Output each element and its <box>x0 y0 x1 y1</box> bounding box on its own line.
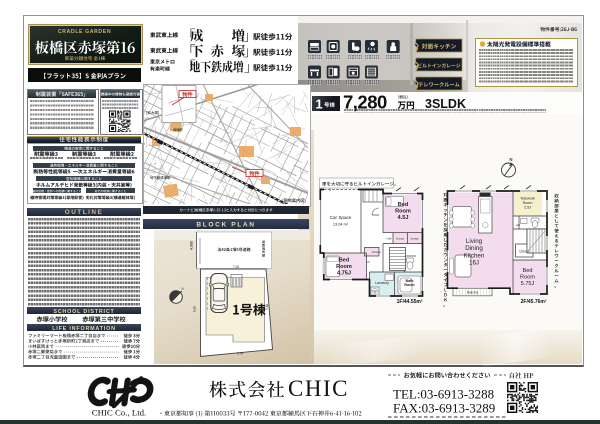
svg-text:LIFE INFORMATION: LIFE INFORMATION <box>52 326 116 332</box>
svg-text:BLOCK PLAN: BLOCK PLAN <box>196 221 255 228</box>
svg-text:Storage: Storage <box>410 238 419 241</box>
svg-text:FAX:03-6913-3289: FAX:03-6913-3289 <box>393 401 495 416</box>
svg-text:SCHOOL DISTRICT: SCHOOL DISTRICT <box>53 309 114 315</box>
svg-text:4.75J: 4.75J <box>337 271 351 277</box>
svg-text:16J: 16J <box>469 260 479 267</box>
svg-text:13.04 m²: 13.04 m² <box>333 222 349 227</box>
svg-text:W: W <box>373 290 376 294</box>
svg-text:CHIC Co., Ltd.: CHIC Co., Ltd. <box>92 408 147 418</box>
svg-text:UP: UP <box>366 260 370 264</box>
svg-text:Lavatory: Lavatory <box>375 281 389 285</box>
svg-text:Room: Room <box>523 201 533 205</box>
svg-text:Hall: Hall <box>516 223 521 227</box>
svg-text:N: N <box>181 287 184 291</box>
svg-text:Room: Room <box>336 264 352 270</box>
svg-text:Car Space: Car Space <box>330 215 352 220</box>
svg-text:Telework: Telework <box>520 197 535 201</box>
svg-text:N: N <box>509 157 512 162</box>
svg-text:Balcony: Balcony <box>467 291 479 295</box>
svg-text:Storage: Storage <box>396 238 405 241</box>
svg-text:Room: Room <box>404 283 414 287</box>
svg-text:Room: Room <box>395 209 411 215</box>
svg-text:TEL:03-6913-3288: TEL:03-6913-3288 <box>393 387 494 402</box>
svg-text:7,280: 7,280 <box>343 92 387 113</box>
svg-text:Kitchen: Kitchen <box>464 252 485 259</box>
svg-text:Hall: Hall <box>386 237 392 241</box>
svg-text:2F/45.76m²: 2F/45.76m² <box>521 299 547 305</box>
svg-text:2.5J: 2.5J <box>524 205 531 209</box>
svg-text:CHIC: CHIC <box>288 376 349 401</box>
svg-text:OUTLINE: OUTLINE <box>65 209 104 216</box>
svg-text:CRADLE GARDEN: CRADLE GARDEN <box>58 29 111 35</box>
svg-text:Closet: Closet <box>372 250 381 254</box>
svg-text:Bed: Bed <box>398 202 409 208</box>
svg-text:Dining: Dining <box>465 245 483 252</box>
svg-text:Bed: Bed <box>339 258 350 264</box>
svg-text:3SLDK: 3SLDK <box>425 97 466 111</box>
svg-text:5.75J: 5.75J <box>521 281 535 287</box>
svg-text:Living: Living <box>466 238 483 245</box>
svg-text:Bed: Bed <box>523 268 533 274</box>
svg-text:1: 1 <box>315 97 322 112</box>
svg-text:Closet: Closet <box>519 250 529 254</box>
svg-text:Room: Room <box>520 275 535 281</box>
svg-text:4.5J: 4.5J <box>398 215 409 221</box>
svg-text:1F/44.55m²: 1F/44.55m² <box>397 299 423 305</box>
